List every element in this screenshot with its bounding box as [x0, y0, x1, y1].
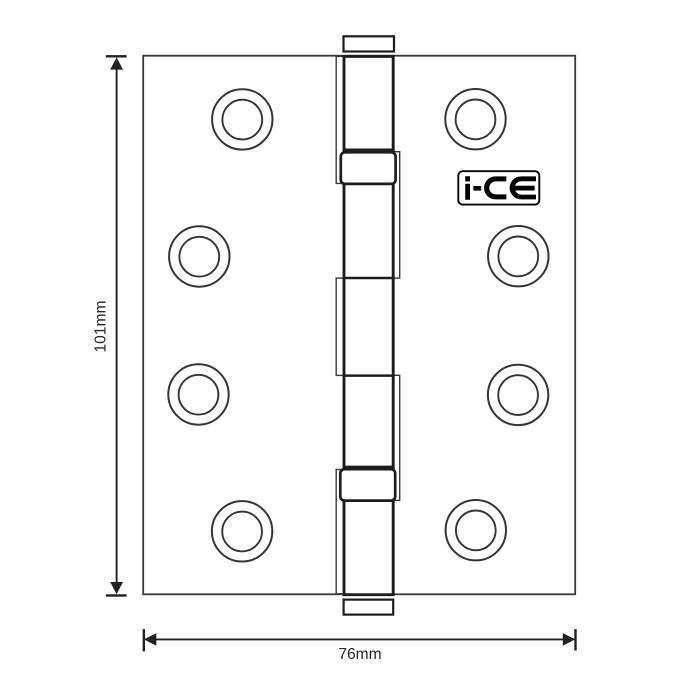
svg-text:101mm: 101mm	[93, 301, 110, 353]
svg-text:76mm: 76mm	[338, 646, 381, 663]
